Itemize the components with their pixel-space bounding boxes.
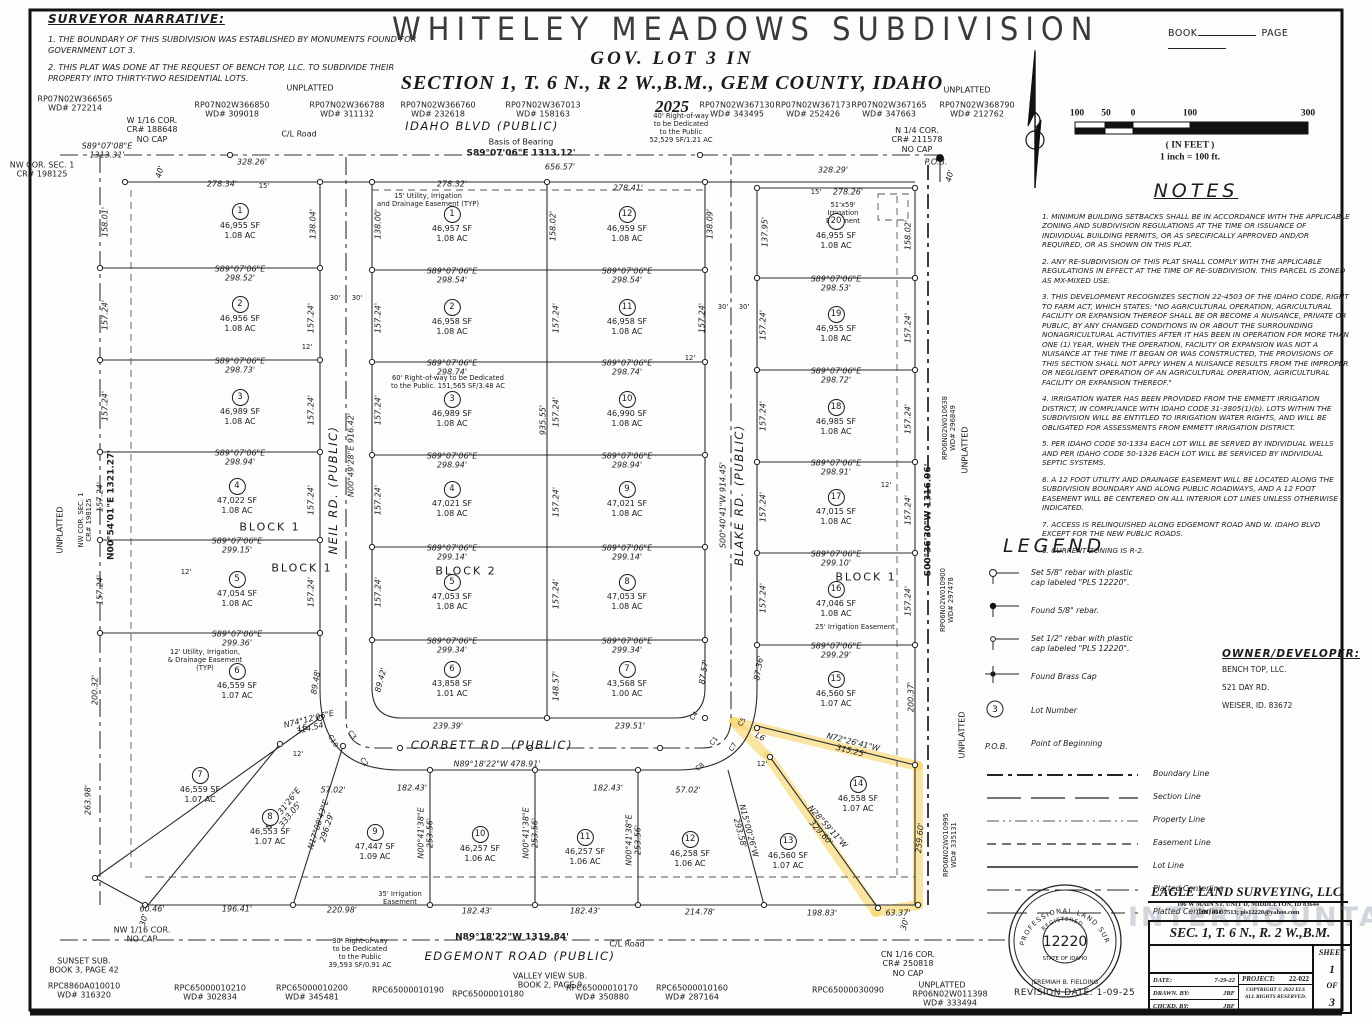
plat-label: RP07N02W366850 WD# 309018 [194, 101, 269, 120]
plat-label: S89°07'06"E 299.10' [811, 550, 862, 569]
lot-area: 47,053 SF [432, 592, 472, 602]
lot-area: 1.07 AC [768, 861, 808, 871]
lot-area: 46,559 SF [180, 785, 220, 795]
list-item: 5. PER IDAHO CODE 50-1334 EACH LOT WILL … [1042, 439, 1350, 467]
plat-label: CORBETT RD. (PUBLIC) [411, 739, 573, 753]
plat-label: 35' Irrigation Easement [378, 890, 422, 906]
plat-label: 157.24' [373, 395, 382, 425]
sheet-of-label: OF [1326, 981, 1337, 990]
plat-label: RP06N02W010638 WD# 296849 [941, 396, 957, 460]
plat-label: 157.24' [903, 495, 912, 525]
lot-number-badge: 20 [828, 213, 845, 230]
plat-label: RPC65000010160 WD# 287164 [656, 984, 728, 1003]
lot-number-badge: 2 [232, 296, 249, 313]
lot-area: 47,053 SF [607, 592, 647, 602]
lot-area: 1.08 AC [607, 602, 647, 612]
plat-label: N00°49'28"E 916.42' [346, 413, 355, 497]
plat-label: W 1/16 COR. CR# 188648 NO CAP [127, 116, 178, 144]
checked-by-label: CHCKD. BY: [1153, 1003, 1189, 1010]
plat-label: VALLEY VIEW SUB. BOOK 2, PAGE 9 [513, 972, 587, 991]
plat-label: S00°36'30"W 1316.96' [924, 464, 935, 577]
lot-16: 1647,046 SF1.08 AC [816, 581, 856, 619]
lot-area: 46,957 SF [432, 224, 472, 234]
plat-label: 157.24' [551, 303, 560, 333]
plat-label: 157.24' [551, 579, 560, 609]
firm-address: 106 W MAIN ST. UNIT D, MIDDLETON, ID 836… [1148, 901, 1348, 918]
plat-label: 15' [811, 188, 822, 196]
lot-number-badge: 4 [444, 481, 461, 498]
narrative-items: 1. THE BOUNDARY OF THIS SUBDIVISION WAS … [48, 34, 438, 84]
notes-items: 1. MINIMUM BUILDING SETBACKS SHALL BE IN… [1042, 212, 1350, 555]
plat-label: ( IN FEET ) [1166, 140, 1215, 151]
plat-label: 182.43' [593, 783, 623, 792]
plat-label: 157.24' [758, 401, 767, 431]
lot-number-badge: 9 [619, 481, 636, 498]
lot-12: 1246,258 SF1.06 AC [670, 831, 710, 869]
plat-label: RP06N02W010900 WD# 297478 [939, 568, 955, 632]
plat-label: 12' [302, 343, 313, 351]
centerline2-line-sample [985, 902, 1145, 921]
lot-number-badge: 17 [828, 489, 845, 506]
lot-area: 46,558 SF [838, 794, 878, 804]
page-label: PAGE [1262, 28, 1289, 39]
plat-label: S89°07'08"E 1313.31' [82, 142, 133, 161]
lot-area: 1.08 AC [220, 324, 260, 334]
plat-label: 89.48' [309, 669, 323, 695]
list-item: WEISER, ID. 83672 [1222, 701, 1362, 712]
plat-label: 157.24' [95, 482, 104, 512]
legend-line-label: Easement Line [1145, 838, 1211, 848]
plat-label: NW COR. SEC. 1 CR# 198125 [77, 493, 93, 548]
plat-label: 57.02' [675, 785, 700, 794]
pob-icon: P.O.B. [985, 734, 1031, 753]
plat-label: 30' [718, 303, 729, 311]
legend-line-boundary: Boundary Line [985, 764, 1235, 783]
project-value: 22-022 [1289, 975, 1309, 983]
plat-label: UNPLATTED [960, 426, 969, 473]
lot-number-badge: 10 [619, 391, 636, 408]
firm-addr-line1: 106 W MAIN ST. UNIT D, MIDDLETON, ID 836… [1148, 901, 1348, 909]
revision-date: REVISION DATE: 1-09-25 [1014, 988, 1184, 998]
section-line: SECTION 1, T. 6 N., R 2 W.,B.M., GEM COU… [392, 72, 952, 95]
plat-label: 30' Right-of-way to be Dedicated to the … [328, 937, 391, 969]
checked-by-value: JBF [1223, 1003, 1235, 1010]
found58-icon [985, 600, 1031, 622]
lot-number-badge: 3 [232, 389, 249, 406]
lot-number-badge: 5 [444, 574, 461, 591]
plat-label: S89°07'06"E 298.72' [811, 367, 862, 386]
lot-area: 46,955 SF [816, 324, 856, 334]
legend-item-found58: Found 5/8" rebar. [985, 600, 1235, 622]
lot-area: 46,955 SF [816, 231, 856, 241]
plat-label: 50 [1101, 108, 1111, 119]
plat-label: 278.34' [207, 179, 237, 188]
notes-panel: NOTES 1. MINIMUM BUILDING SETBACKS SHALL… [1042, 180, 1350, 562]
lot-area: 1.08 AC [816, 517, 856, 527]
lot-14: 1446,558 SF1.07 AC [838, 776, 878, 814]
lot-area: 1.08 AC [432, 419, 472, 429]
plat-label: 100 [1183, 108, 1197, 119]
plat-label: 157.24' [306, 395, 315, 425]
lot-area: 1.07 AC [250, 837, 290, 847]
plat-label: N00°41'38"E 253.56' [417, 807, 436, 858]
legend-item-label: Set 5/8" rebar with plastic cap labeled … [1031, 568, 1133, 587]
plat-label: 328.26' [237, 157, 267, 166]
sheet-number: 1 [1329, 962, 1335, 977]
lot-area: 43,568 SF [607, 679, 647, 689]
lot-area: 47,021 SF [607, 499, 647, 509]
lot-3: 346,989 SF1.08 AC [220, 389, 260, 427]
set58-icon [985, 567, 1031, 589]
lot-area: 46,956 SF [220, 314, 260, 324]
section-line-sample [985, 787, 1145, 806]
lot-19: 1946,955 SF1.08 AC [816, 306, 856, 344]
legend-item-label: Found Brass Cap [1031, 672, 1097, 682]
project-label: PROJECT: [1242, 975, 1275, 983]
lot-10: 1046,257 SF1.06 AC [460, 826, 500, 864]
brass-icon [985, 666, 1031, 688]
set12-icon [985, 633, 1031, 655]
lot-8: 847,053 SF1.08 AC [607, 574, 647, 612]
plat-label: 328.29' [818, 165, 848, 174]
plat-label: 196.41' [222, 904, 252, 913]
legend-item-pob: P.O.B.Point of Beginning [985, 734, 1235, 753]
legend-line-section: Section Line [985, 787, 1235, 806]
lot-area: 46,257 SF [565, 847, 605, 857]
list-item: 1. THE BOUNDARY OF THIS SUBDIVISION WAS … [48, 34, 438, 55]
lot-number-badge: 3 [444, 391, 461, 408]
lot-13: 1346,560 SF1.07 AC [768, 833, 808, 871]
plat-label: L5 [297, 722, 308, 733]
year: 2025 [392, 97, 952, 117]
plat-label: 157.24' [373, 303, 382, 333]
plat-label: S89°07'06"E 298.54' [427, 267, 478, 286]
sheet-number-cell: SHEET 1 OF 3 [1314, 946, 1350, 1012]
lot-area: 1.08 AC [816, 427, 856, 437]
plat-label: 138.09' [705, 209, 714, 239]
plat-label: RP07N02W366788 WD# 311132 [309, 101, 384, 120]
lot-area: 46,955 SF [220, 221, 260, 231]
lot-area: 46,559 SF [217, 681, 257, 691]
lot-area: 1.06 AC [565, 857, 605, 867]
plat-label: 198.83' [807, 908, 837, 917]
plat-label: S89°07'06"E 298.53' [811, 275, 862, 294]
lot-area: 1.08 AC [607, 327, 647, 337]
list-item: 1. MINIMUM BUILDING SETBACKS SHALL BE IN… [1042, 212, 1350, 250]
plat-label: 182.43' [462, 906, 492, 915]
plat-label: C8 [694, 761, 706, 773]
plat-label: 137.95' [760, 217, 769, 247]
surveyor-narrative: SURVEYOR NARRATIVE: 1. THE BOUNDARY OF T… [48, 12, 438, 91]
legend-line-label: Property Line [1145, 815, 1205, 825]
lot-area: 1.07 AC [217, 691, 257, 701]
lot-6: 643,858 SF1.01 AC [432, 661, 472, 699]
plat-label: 157.24' [758, 492, 767, 522]
plat-label: 278.32' [437, 179, 467, 188]
plat-label: 87.57' [697, 659, 711, 685]
plat-label: N 1/4 COR. CR# 211578 NO CAP [892, 126, 943, 154]
lot-area: 46,553 SF [250, 827, 290, 837]
legend-item-label: Point of Beginning [1031, 739, 1102, 749]
plat-label: 259.60' [914, 823, 926, 854]
lot-area: 1.08 AC [607, 234, 647, 244]
legend-line-easement: Easement Line [985, 833, 1235, 852]
lot-2: 246,956 SF1.08 AC [220, 296, 260, 334]
lot-1: 146,957 SF1.08 AC [432, 206, 472, 244]
plat-label: 30' [739, 303, 750, 311]
plat-label: 30' [138, 913, 150, 927]
firm-addr-line2: (208) 861-7513; pls12220@yahoo.com [1148, 909, 1348, 917]
plat-label: S89°07'06"E 299.29' [811, 642, 862, 661]
plat-label: S89°07'06"E 298.74' [427, 359, 478, 378]
lot-area: 1.08 AC [217, 506, 257, 516]
book-label: BOOK [1168, 28, 1198, 39]
lot-area: 1.06 AC [460, 854, 500, 864]
plat-label: CN 1/16 COR. CR# 250818 NO CAP [881, 950, 935, 978]
plat-label: 157.24' [551, 397, 560, 427]
plat-sheet: .lot{stroke:#2b2b2b;stroke-width:1.1;fil… [0, 0, 1372, 1022]
list-item: BENCH TOP, LLC. [1222, 665, 1362, 676]
lot-area: 1.08 AC [607, 509, 647, 519]
plat-label: S89°07'06"E 298.94' [602, 452, 653, 471]
drawn-by-value: JBF [1223, 990, 1235, 997]
plat-label: 220.98' [327, 905, 357, 914]
plat-label: IDAHO BLVD (PUBLIC) [405, 120, 559, 134]
plat-label: N00°41'38"E 253.56' [625, 814, 644, 865]
plat-label: 158.01' [100, 207, 109, 237]
plat-label: S89°07'06"E 299.36' [212, 630, 263, 649]
plat-label: 157.24' [903, 404, 912, 434]
book-blank[interactable] [1198, 26, 1256, 36]
lot-area: 46,257 SF [460, 844, 500, 854]
lot-area: 47,447 SF [355, 842, 395, 852]
plat-label: 239.39' [433, 721, 463, 730]
lot-11: 1146,257 SF1.06 AC [565, 829, 605, 867]
plat-label: 60.46' [139, 904, 164, 913]
lot-area: 46,989 SF [220, 407, 260, 417]
plat-label: NW COR. SEC. 1 CR# 198125 [10, 161, 75, 180]
plat-label: NW 1/16 COR. NO CAP [114, 926, 171, 945]
lot-number-badge: 1 [444, 206, 461, 223]
lot-area: 1.00 AC [607, 689, 647, 699]
plat-label: 25' Irrigation Easement [815, 623, 895, 631]
lot-4: 447,021 SF1.08 AC [432, 481, 472, 519]
lot-1: 146,955 SF1.08 AC [220, 203, 260, 241]
centerline1-line-sample [985, 879, 1145, 898]
list-item: 2. ANY RE-SUBDIVISION OF THIS PLAT SHALL… [1042, 257, 1350, 285]
plat-label: RPC65000010200 WD# 345481 [276, 984, 348, 1003]
plat-label: N72°26'41"W 315.25' [823, 731, 880, 762]
lot-number-badge: 10 [472, 826, 489, 843]
plat-label: 157.24' [100, 300, 109, 330]
plat-label: S89°07'06"E 299.34' [427, 637, 478, 656]
lot-number-badge: 16 [828, 581, 845, 598]
plat-label: 157.24' [95, 575, 104, 605]
sheet-total: 3 [1329, 995, 1335, 1010]
plat-label: 12' [181, 568, 192, 576]
legend-item-set12: Set 1/2" rebar with plastic cap labeled … [985, 633, 1235, 655]
lot-number-badge: 6 [229, 663, 246, 680]
plat-label: N15°00'26"W 293.58' [728, 803, 760, 860]
plat-label: 157.24' [373, 485, 382, 515]
plat-label: RPC65000030090 [812, 985, 884, 994]
plat-label: 40' [944, 169, 956, 183]
lot-5: 547,053 SF1.08 AC [432, 574, 472, 612]
lot-11: 1146,958 SF1.08 AC [607, 299, 647, 337]
plat-label: C1 [708, 735, 720, 747]
plat-label: P.O.B. [925, 157, 948, 166]
lot-8: 846,553 SF1.07 AC [250, 809, 290, 847]
plat-label: 200.37' [906, 682, 915, 712]
page-blank[interactable] [1168, 39, 1226, 49]
plat-label: 60' Right-of-way to be Dedicated to the … [391, 374, 505, 390]
plat-label: 12' [685, 354, 696, 362]
plat-label: S89°07'06"E 298.73' [215, 357, 266, 376]
plat-label: S89°07'06"E 299.15' [212, 537, 263, 556]
list-item: 6. A 12 FOOT UTILITY AND DRAINAGE EASEME… [1042, 475, 1350, 513]
copyright-note: COPYRIGHT © 2022 ELS ALL RIGHTS RESERVED… [1239, 985, 1312, 1012]
plat-label: 182.43' [397, 783, 427, 792]
list-item: 4. IRRIGATION WATER HAS BEEN PROVIDED FR… [1042, 394, 1350, 432]
boundary-line-sample [985, 764, 1145, 783]
plat-label: S89°07'06"E 298.91' [811, 459, 862, 478]
plat-label: C2 [358, 756, 370, 768]
lot-area: 1.07 AC [816, 699, 856, 709]
plat-label: 89.42' [373, 667, 389, 694]
lot-area: 46,990 SF [607, 409, 647, 419]
plat-label: UNPLATTED [55, 506, 64, 553]
plat-label: BLOCK 1 [239, 522, 300, 535]
lot-area: 1.08 AC [432, 602, 472, 612]
plat-label: S89°07'06"E 1313.12' [466, 149, 575, 160]
legend-item-label: Set 1/2" rebar with plastic cap labeled … [1031, 634, 1133, 653]
plat-label: 30' [899, 917, 911, 931]
gov-lot-line: GOV. LOT 3 IN [392, 48, 952, 70]
plat-label: 87.36' [752, 655, 766, 681]
lot-area: 1.08 AC [432, 509, 472, 519]
plat-label: C/L Road [281, 129, 316, 138]
legend-item-label: Found 5/8" rebar. [1031, 606, 1099, 616]
plat-label: 63.37' [885, 908, 910, 917]
owner-developer: OWNER/DEVELOPER: BENCH TOP, LLC.521 DAY … [1222, 648, 1362, 719]
plat-label: C4 [688, 710, 700, 722]
lot-area: 1.06 AC [670, 859, 710, 869]
lot-area: 47,015 SF [816, 507, 856, 517]
legend-panel: LEGEND Set 5/8" rebar with plastic cap l… [985, 535, 1235, 925]
lot-17: 1747,015 SF1.08 AC [816, 489, 856, 527]
lot-2: 246,958 SF1.08 AC [432, 299, 472, 337]
date-value: 7-29-22 [1214, 977, 1235, 984]
lot-number-badge: 15 [828, 671, 845, 688]
list-item: 521 DAY RD. [1222, 683, 1362, 694]
plat-label: 157.24' [306, 303, 315, 333]
lot-area: 46,560 SF [816, 689, 856, 699]
subdivision-title: WHITELEY MEADOWS SUBDIVISION [392, 10, 952, 47]
plat-label: RPC65000010210 WD# 302834 [174, 984, 246, 1003]
lot-number-badge: 14 [850, 776, 867, 793]
lot-area: 47,046 SF [816, 599, 856, 609]
plat-label: S00°40'41"W 914.45' [718, 462, 727, 548]
lot-area: 46,989 SF [432, 409, 472, 419]
lot-area: 1.09 AC [355, 852, 395, 862]
lot-9: 947,021 SF1.08 AC [607, 481, 647, 519]
plat-label: RPC65000010180 [452, 989, 524, 998]
plat-label: S89°07'06"E 298.74' [602, 359, 653, 378]
plat-label: 30' [352, 294, 363, 302]
lot-area: 47,021 SF [432, 499, 472, 509]
legend-line-lot: Lot Line [985, 856, 1235, 875]
lot-area: 46,958 SF [432, 317, 472, 327]
lot-number-badge: 12 [619, 206, 636, 223]
plat-label: 157.24' [100, 391, 109, 421]
lot-number-badge: 6 [444, 661, 461, 678]
lot-10: 1046,990 SF1.08 AC [607, 391, 647, 429]
plat-label: N89°18'22"W 478.91' [453, 759, 540, 768]
legend-item-set58: Set 5/8" rebar with plastic cap labeled … [985, 567, 1235, 589]
legend-line-label: Boundary Line [1145, 769, 1209, 779]
lot-20: 2046,955 SF1.08 AC [816, 213, 856, 251]
plat-label: 182.43' [570, 906, 600, 915]
lot-area: 46,985 SF [816, 417, 856, 427]
lot-area: 46,959 SF [607, 224, 647, 234]
lot-3: 346,989 SF1.08 AC [432, 391, 472, 429]
plat-label: EDGEMONT ROAD (PUBLIC) [424, 950, 615, 964]
book-page-fields: BOOKPAGE [1168, 26, 1348, 52]
plat-label: Basis of Bearing [489, 137, 554, 146]
lot-area: 1.01 AC [432, 689, 472, 699]
lot-7: 743,568 SF1.00 AC [607, 661, 647, 699]
lot-15: 1546,560 SF1.07 AC [816, 671, 856, 709]
legend-item-brass: Found Brass Cap [985, 666, 1235, 688]
plat-label: 158.02' [548, 211, 557, 241]
lot-number-badge: 1 [232, 203, 249, 220]
lot-number-badge: 7 [619, 661, 636, 678]
lot-number-badge: 4 [229, 478, 246, 495]
lot-area: 47,022 SF [217, 496, 257, 506]
plat-label: 239.51' [615, 721, 645, 730]
notes-heading: NOTES [1042, 180, 1350, 202]
lot-number-badge: 8 [262, 809, 279, 826]
plat-label: 138.04' [308, 209, 317, 239]
plat-label: 263.98' [83, 785, 92, 815]
legend-symbol-items: Set 5/8" rebar with plastic cap labeled … [985, 567, 1235, 753]
plat-label: 148.57' [551, 671, 560, 701]
lot-line-sample [985, 856, 1145, 875]
plat-label: RPC8860A010010 WD# 316320 [48, 982, 120, 1001]
plat-label: 157.24' [306, 485, 315, 515]
plat-label: S89°07'06"E 298.54' [602, 267, 653, 286]
plat-label: 157.24' [758, 583, 767, 613]
lot-area: 46,958 SF [607, 317, 647, 327]
lot-number-badge: 7 [192, 767, 209, 784]
lot-number-badge: 5 [229, 571, 246, 588]
plat-label: BLOCK 1 [271, 563, 332, 576]
plat-label: RP06N02W010995 WD# 335131 [942, 813, 958, 877]
plat-label: 12' [881, 481, 892, 489]
plat-label: 200.32' [90, 675, 99, 705]
plat-label: RPC65000010170 WD# 350880 [566, 984, 638, 1003]
lot-number-badge: 18 [828, 399, 845, 416]
lot-12: 1246,959 SF1.08 AC [607, 206, 647, 244]
plat-label: S89°07'06"E 299.34' [602, 637, 653, 656]
plat-label: L6 [754, 731, 767, 744]
plat-label: 157.24' [758, 310, 767, 340]
lot-area: 43,858 SF [432, 679, 472, 689]
plat-label: S89°07'06"E 299.14' [602, 544, 653, 563]
plat-label: 157.24' [903, 313, 912, 343]
lot-number-badge: 12 [682, 831, 699, 848]
lot-area: 1.08 AC [220, 417, 260, 427]
